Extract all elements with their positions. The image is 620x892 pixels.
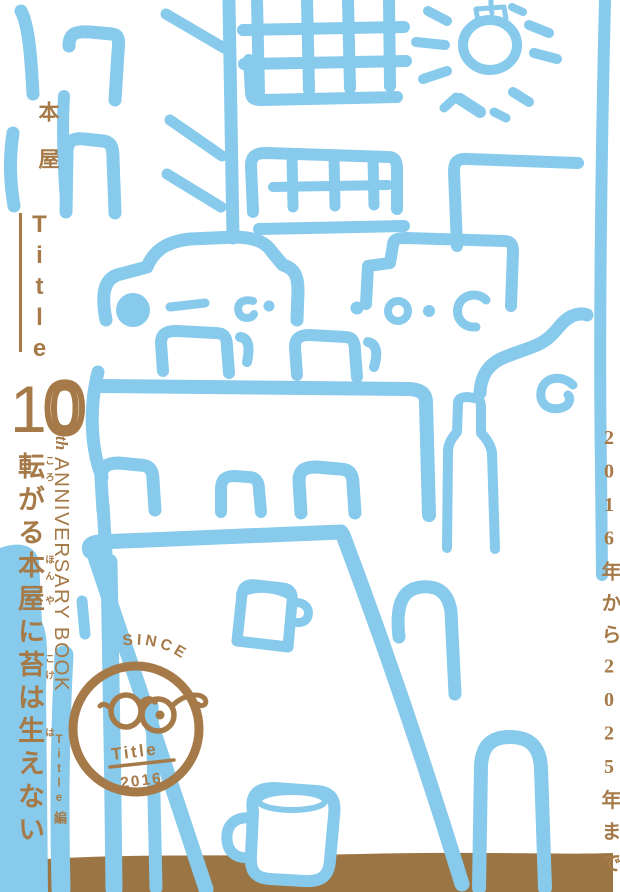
headline-ruby: ほん	[43, 551, 53, 584]
van-icon	[351, 238, 514, 327]
small-mug-icon	[237, 585, 308, 647]
headline-segment: 苔こけ	[14, 650, 44, 683]
headline-segment: 本ほん	[14, 551, 44, 584]
anniversary-digit-0: 0	[45, 373, 85, 445]
headline-base: 苔	[14, 650, 44, 683]
headline-base: 屋	[14, 584, 44, 617]
publisher-vertical-label: 本屋	[33, 101, 63, 195]
tree-pole-icon	[166, 2, 233, 238]
headline-base: 転	[14, 452, 44, 485]
poster-root: 本屋 Title 1 0 thANNIVERSARY BOOK 転ころがる本ほん…	[0, 0, 620, 892]
headline-segment: 屋や	[14, 584, 44, 617]
headline-segment: 転ころ	[14, 452, 44, 485]
editor-kanji: 編	[52, 807, 67, 824]
car-icon	[104, 237, 298, 327]
anniversary-suffix: th	[52, 436, 71, 450]
anniversary-digit-1: 1	[10, 376, 47, 442]
headline-base: に	[14, 617, 44, 650]
period-vertical-label: 2016年から2025年まで	[595, 427, 620, 884]
headline-base: 生	[14, 716, 44, 749]
headline-ruby: ころ	[43, 452, 53, 485]
hanging-cups-icon	[101, 463, 355, 513]
logo-rule	[19, 213, 22, 352]
awning-corner-icon	[454, 159, 578, 246]
headline-segment: に	[14, 617, 44, 650]
headline-base: がる	[14, 485, 44, 551]
window-grid-icon	[243, 0, 406, 100]
bottle-icon	[447, 397, 495, 549]
headline-base: 本	[14, 551, 44, 584]
headline-segment: 生は	[14, 716, 44, 749]
headline-ruby: や	[43, 584, 53, 617]
headline-segment: は	[14, 683, 44, 716]
headline-base: えない	[14, 749, 44, 848]
headline-segment: がる	[14, 485, 44, 551]
mugs-on-shelf-icon	[161, 331, 376, 377]
stamp-title-text: Title	[110, 739, 159, 764]
headline-base: は	[14, 683, 44, 716]
since-stamp: SINCE Title 2016	[48, 628, 228, 808]
bookshelf-icon	[251, 153, 404, 229]
stamp-arc-text: SINCE	[122, 631, 191, 663]
headline-segment: えない	[14, 749, 44, 848]
roof-strokes-icon	[10, 11, 118, 213]
title-logo-vertical: Title	[25, 211, 53, 366]
anniversary-number: 1 0	[10, 376, 85, 445]
lightbulb-icon	[416, 0, 557, 118]
curl-and-wave-icon	[480, 314, 587, 409]
